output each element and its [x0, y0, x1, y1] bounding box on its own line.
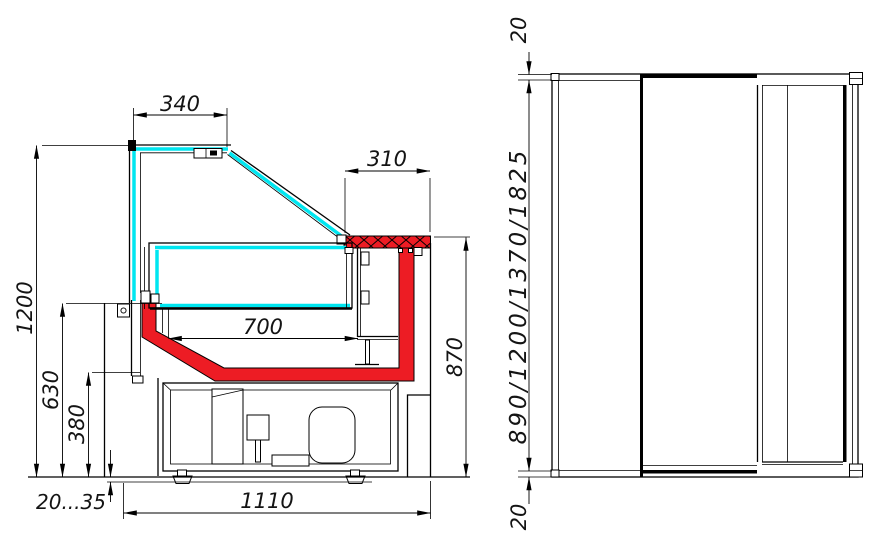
- dim-label-310: 310: [367, 147, 407, 171]
- relay-stem: [256, 440, 261, 462]
- base-inner: [171, 390, 391, 464]
- plan-mid-top-thick: [643, 74, 757, 78]
- base-corner-tick-right: [391, 383, 398, 390]
- dim-base-height: 380: [65, 373, 140, 478]
- dim-counter-depth: 310: [345, 147, 430, 233]
- plan-right-thick: [843, 85, 847, 462]
- rear-step: [408, 395, 431, 477]
- relay-box: [247, 415, 269, 440]
- shelf-support: [366, 340, 370, 364]
- counter-fitting-right: [414, 248, 422, 256]
- foot-stem-left: [178, 470, 187, 476]
- dim-label-380: 380: [65, 404, 89, 444]
- dim-label-870: 870: [443, 337, 467, 377]
- dim-well-width: 700: [169, 315, 359, 339]
- front-panel-foot-step: [133, 376, 144, 383]
- dim-label-lengths: 890/1200/1370/1825: [506, 148, 532, 445]
- dim-available-lengths: 890/1200/1370/1825: [506, 80, 532, 471]
- plan-dimensions: 20 890/1200/1370/1825 20: [506, 17, 552, 531]
- dim-front-bottom-offset: 20: [507, 477, 531, 530]
- plan-divider-thick: [640, 74, 643, 477]
- rear-interior-column: [355, 248, 398, 365]
- dim-label-20-35: 20...35: [36, 490, 106, 514]
- plan-outer: [552, 74, 858, 477]
- dim-foot-adjust: 20...35: [36, 450, 110, 514]
- dim-counter-height: 870: [434, 237, 470, 477]
- dim-front-top-offset: 20: [507, 17, 531, 75]
- dim-label-1110: 1110: [240, 489, 293, 513]
- drawing-svg: 340 310 700 1200 630: [0, 0, 877, 551]
- front-plan-view: 20 890/1200/1370/1825 20: [506, 17, 863, 531]
- side-section-view: 340 310 700 1200 630: [13, 92, 470, 519]
- canopy-lamp-housing: [194, 149, 222, 159]
- drain-tray: [272, 455, 309, 466]
- plan-cap-top-left: [551, 74, 559, 81]
- dim-label-20-top: 20: [507, 17, 531, 44]
- shelf-bracket-upper: [361, 252, 369, 265]
- technical-drawing-canvas: 340 310 700 1200 630: [0, 0, 877, 551]
- condenser-unit: [212, 389, 243, 464]
- lamp-element: [210, 151, 217, 156]
- glass-surfaces: [133, 149, 350, 306]
- display-well-outline: [149, 243, 352, 308]
- sill-fitting-a: [141, 291, 150, 303]
- dim-label-20-bottom: 20: [507, 504, 531, 531]
- plan-mid-bottom-thick: [643, 470, 757, 474]
- base-corner-tick-left: [163, 383, 171, 390]
- red-countertop-hatched: [344, 236, 431, 248]
- plan-cap-bottom-left: [551, 470, 559, 477]
- dim-label-340: 340: [160, 92, 200, 116]
- dim-label-1200: 1200: [13, 281, 37, 334]
- front-bracket: [118, 304, 130, 317]
- foot-stem-right: [351, 470, 360, 476]
- counter-screw-b: [409, 249, 413, 253]
- sloped-glass: [230, 153, 346, 239]
- plan-structure: [551, 73, 863, 478]
- slope-inner-line: [228, 155, 344, 242]
- shelf-bracket-lower: [361, 291, 369, 304]
- dim-label-630: 630: [39, 370, 63, 410]
- sill-fitting-b: [151, 294, 159, 303]
- counter-fitting-left: [345, 248, 353, 254]
- machine-compartment: [212, 389, 355, 466]
- compressor: [309, 407, 355, 463]
- dim-overall-depth: 1110: [124, 481, 431, 519]
- counter-screw-a: [399, 249, 403, 253]
- dim-canopy-depth: 340: [134, 92, 228, 147]
- dim-label-700: 700: [243, 315, 283, 339]
- slope-outer-line: [231, 151, 350, 236]
